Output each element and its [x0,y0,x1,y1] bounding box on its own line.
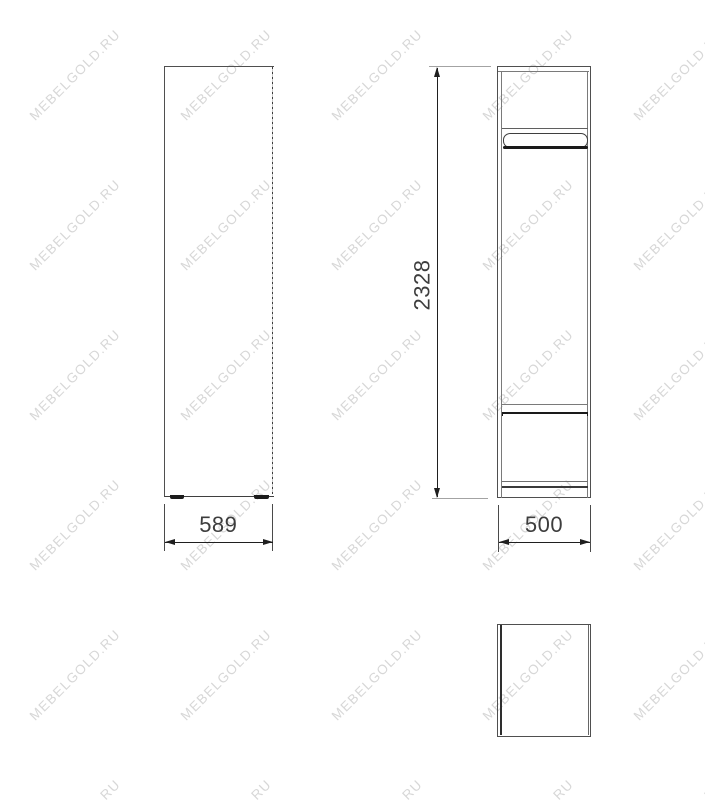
dim-width-arrow-left [165,539,175,545]
dim-height-arrow-bottom [434,488,440,498]
dim-height-label: 2328 [412,245,434,326]
watermark-text: MEBELGOLD.RU [27,777,124,800]
watermark-text: MEBELGOLD.RU [329,477,426,574]
watermark-text: MEBELGOLD.RU [329,327,426,424]
side-view-inner-line-right [587,71,588,498]
top-view-inner-line-right [588,625,589,736]
dim-width-line [165,542,273,543]
top-view-inner-line-left [500,625,502,736]
side-view-shelf-line [502,404,589,405]
dim-height-arrow-top [434,67,440,77]
side-view-inner-line-left [501,71,502,498]
watermark-text: MEBELGOLD.RU [178,627,275,724]
watermark-text: MEBELGOLD.RU [329,27,426,124]
drawing-canvas: MEBELGOLD.RUMEBELGOLD.RUMEBELGOLD.RUMEBE… [0,0,705,800]
front-view-foot-right [254,495,269,499]
front-view-foot-left [170,495,185,499]
front-view-outline [164,66,274,497]
front-view-hinge-dashed-edge [272,67,274,495]
watermark-text: MEBELGOLD.RU [27,627,124,724]
watermark-text: MEBELGOLD.RU [480,777,577,800]
dim-height-extension-line-bottom [432,498,488,499]
side-view-shelf-end-tick-left [502,412,503,417]
watermark-text: MEBELGOLD.RU [631,777,705,800]
side-view-shelf-thick-line [502,412,589,415]
dim-depth-label: 500 [497,514,591,536]
side-view-top-panel-line [498,71,589,72]
watermark-text: MEBELGOLD.RU [329,777,426,800]
side-view-upper-shelf-line [502,128,589,129]
side-view-shelf-end-tick-right [587,412,588,417]
side-view-bottom-shelf-line [502,481,589,482]
watermark-text: MEBELGOLD.RU [631,327,705,424]
watermark-text: MEBELGOLD.RU [631,627,705,724]
watermark-text: MEBELGOLD.RU [27,477,124,574]
dim-width-label: 589 [164,514,272,536]
watermark-text: MEBELGOLD.RU [178,777,275,800]
dim-depth-arrow-right [580,539,590,545]
dim-width-arrow-right [263,539,273,545]
side-view-plinth-line [502,486,589,488]
watermark-text: MEBELGOLD.RU [631,477,705,574]
top-view-outline [497,624,591,737]
side-view-outline [497,66,591,498]
watermark-text: MEBELGOLD.RU [631,27,705,124]
watermark-text: MEBELGOLD.RU [27,177,124,274]
dim-depth-arrow-left [499,539,509,545]
watermark-text: MEBELGOLD.RU [27,27,124,124]
side-view-rail-thick-line [503,146,589,149]
watermark-text: MEBELGOLD.RU [329,627,426,724]
dim-height-line [437,68,438,497]
watermark-text: MEBELGOLD.RU [27,327,124,424]
watermark-layer: MEBELGOLD.RUMEBELGOLD.RUMEBELGOLD.RUMEBE… [0,0,705,800]
watermark-text: MEBELGOLD.RU [631,177,705,274]
dim-depth-line [499,542,591,543]
